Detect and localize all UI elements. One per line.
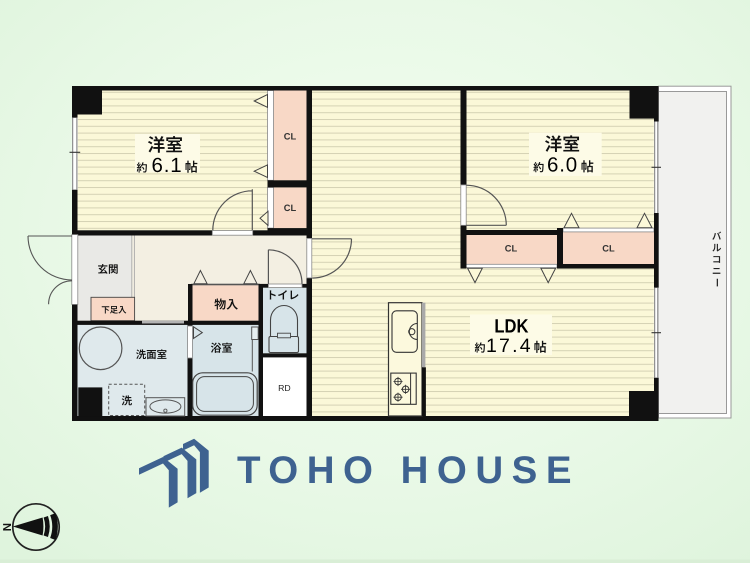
svg-text:6.0: 6.0 [547, 154, 578, 177]
svg-text:CL: CL [602, 244, 615, 254]
svg-text:N: N [2, 523, 14, 531]
svg-text:CL: CL [284, 132, 297, 142]
svg-text:CL: CL [284, 203, 297, 213]
svg-text:CL: CL [505, 244, 518, 254]
svg-text:RD: RD [278, 383, 291, 393]
svg-text:17.4: 17.4 [486, 335, 533, 357]
svg-text:6.1: 6.1 [152, 154, 183, 177]
svg-text:TOHO HOUSE: TOHO HOUSE [237, 449, 578, 492]
